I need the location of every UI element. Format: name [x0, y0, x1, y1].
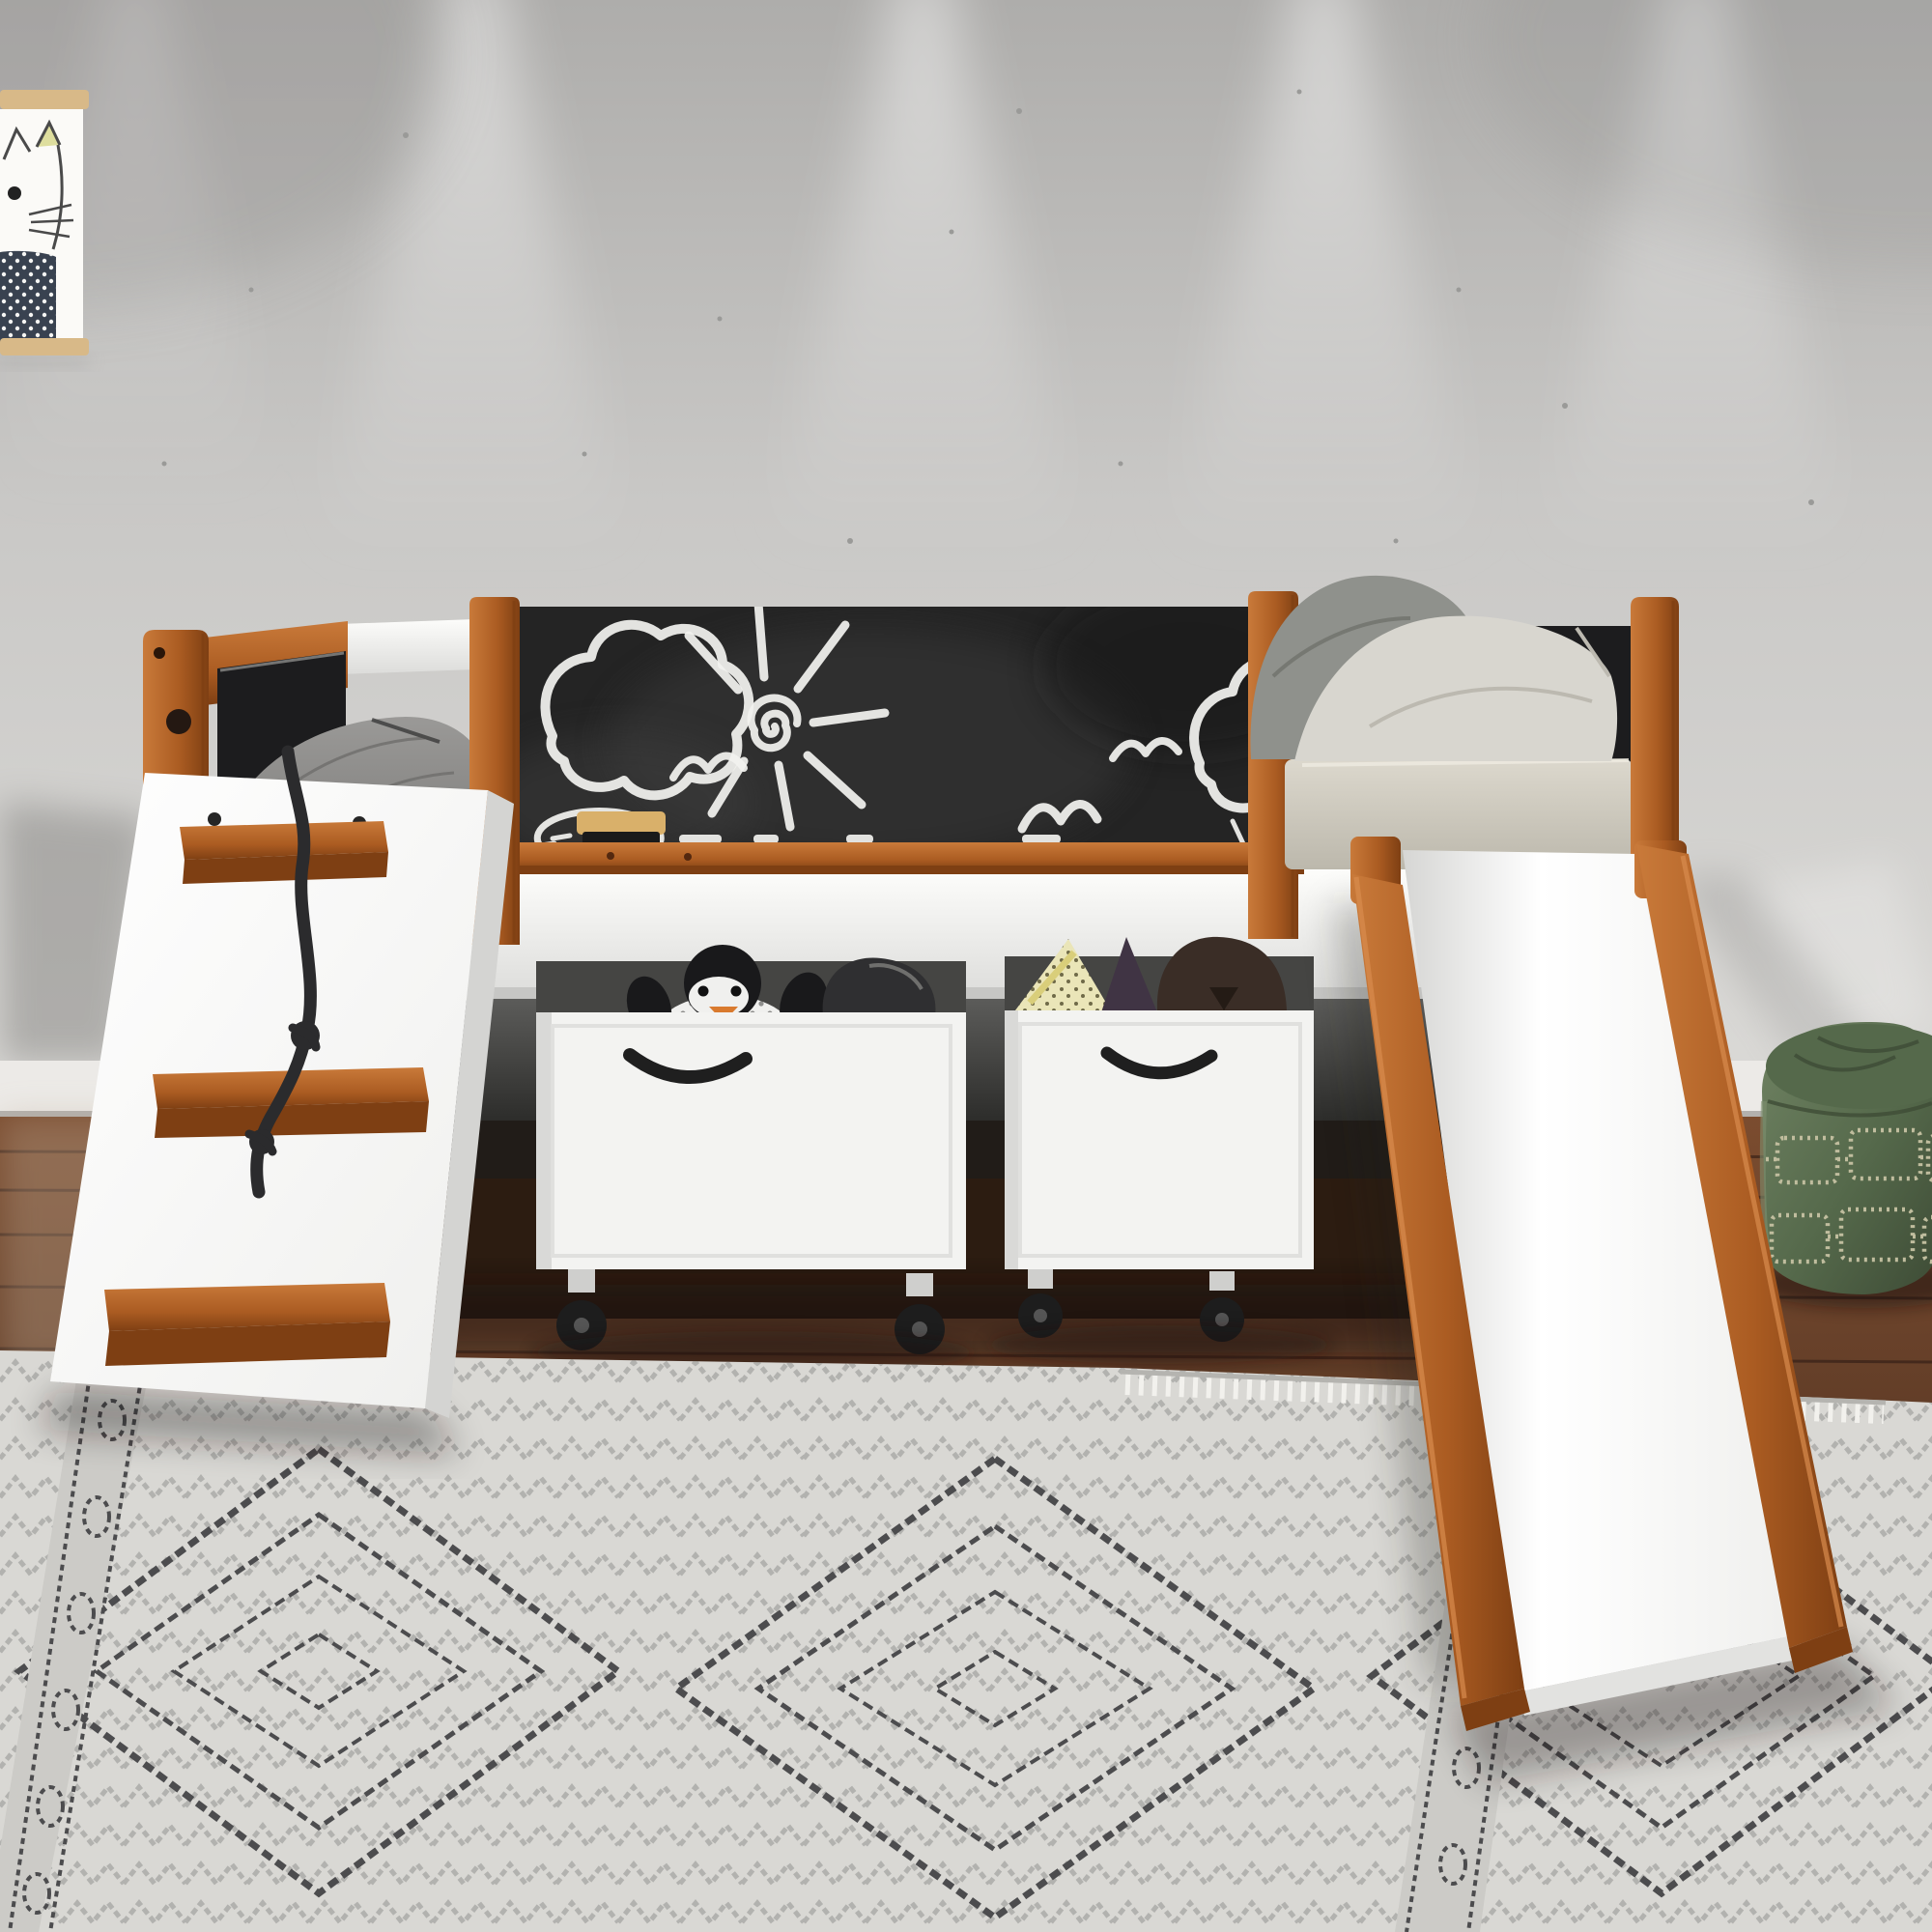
ramp-screw: [208, 812, 221, 826]
post-screw: [154, 647, 165, 659]
poster-hanger-top: [0, 90, 89, 109]
ramp-step-1: [180, 821, 388, 884]
bin-front: [536, 1012, 966, 1269]
photo-canvas: [0, 0, 1932, 1932]
chalk-tray: [437, 842, 1304, 874]
poster-cat-print: [0, 90, 89, 367]
post-knob: [166, 709, 191, 734]
cat-eye: [8, 186, 21, 200]
green-pouf: [1752, 1022, 1932, 1308]
ramp-step-3: [104, 1283, 390, 1366]
scene-kids-loft-bed: [0, 0, 1932, 1932]
bin-front: [1005, 1010, 1314, 1269]
poster-hanger-bottom: [0, 338, 89, 355]
